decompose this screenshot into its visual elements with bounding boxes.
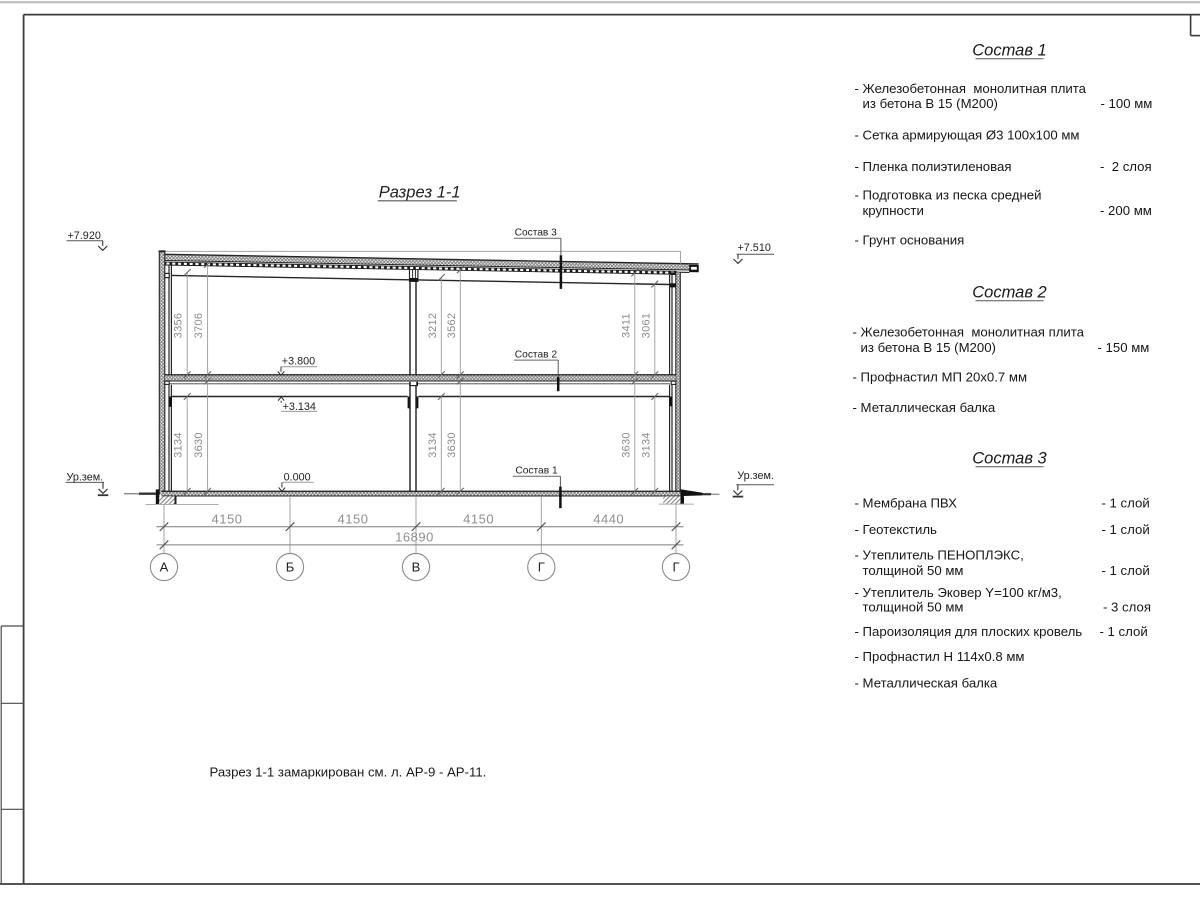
svg-text:3706: 3706 <box>193 313 205 339</box>
svg-text:- 1 слой: - 1 слой <box>1102 522 1150 537</box>
svg-text:- Железобетонная монолитная п: - Железобетонная монолитная плита <box>853 325 1085 340</box>
svg-text:Ур.зем.: Ур.зем. <box>67 472 104 484</box>
svg-text:4150: 4150 <box>463 511 494 526</box>
svg-text:- 1 слой: - 1 слой <box>1102 496 1150 511</box>
svg-text:- Пленка полиэтиленовая: - Пленка полиэтиленовая <box>855 159 1012 174</box>
svg-text:- 1 слой: - 1 слой <box>1100 624 1148 639</box>
svg-text:3134: 3134 <box>427 432 439 458</box>
svg-text:Разрез 1-1 замаркирован см. л.: Разрез 1-1 замаркирован см. л. АР-9 - АР… <box>210 765 487 780</box>
svg-text:Состав 1: Состав 1 <box>515 465 558 476</box>
svg-text:+7.510: +7.510 <box>738 242 771 254</box>
svg-text:Б: Б <box>286 560 295 575</box>
svg-text:- 200 мм: - 200 мм <box>1100 203 1152 218</box>
svg-text:- 100 мм: - 100 мм <box>1101 96 1153 111</box>
svg-text:3411: 3411 <box>620 313 632 338</box>
svg-text:3356: 3356 <box>173 313 185 339</box>
svg-text:- Металлическая балка: - Металлическая балка <box>853 400 996 415</box>
svg-text:+3.800: +3.800 <box>282 355 315 367</box>
svg-text:16890: 16890 <box>395 529 434 544</box>
svg-text:4150: 4150 <box>212 511 243 526</box>
svg-text:Г: Г <box>538 560 545 575</box>
svg-text:- Железобетонная монолитная п: - Железобетонная монолитная плита <box>855 81 1087 96</box>
svg-text:3061: 3061 <box>640 313 652 339</box>
svg-text:В: В <box>412 560 421 575</box>
svg-text:толщиной 50 мм: толщиной 50 мм <box>863 600 964 615</box>
svg-text:4440: 4440 <box>593 511 624 526</box>
svg-text:4150: 4150 <box>338 511 369 526</box>
svg-text:Разрез 1-1: Разрез 1-1 <box>379 184 461 202</box>
svg-text:- Утеплитель Эковер Y=100 кг/м: - Утеплитель Эковер Y=100 кг/м3, <box>855 585 1062 600</box>
svg-text:- Профнастил Н 114х0.8 мм: - Профнастил Н 114х0.8 мм <box>855 649 1025 664</box>
svg-text:- Мембрана ПВХ: - Мембрана ПВХ <box>855 496 958 511</box>
svg-text:Состав 2: Состав 2 <box>972 284 1046 302</box>
svg-text:- 150 мм: - 150 мм <box>1098 340 1150 355</box>
svg-text:из бетона В 15 (М200): из бетона В 15 (М200) <box>861 340 996 355</box>
svg-text:Г: Г <box>672 560 679 575</box>
svg-text:3562: 3562 <box>446 313 458 339</box>
svg-text:Состав 1: Состав 1 <box>972 42 1046 60</box>
svg-text:- Сетка армирующая Ø3 100х100: - Сетка армирующая Ø3 100х100 мм <box>855 128 1080 143</box>
svg-text:- Утеплитель ПЕНОПЛЭКС,: - Утеплитель ПЕНОПЛЭКС, <box>855 548 1024 563</box>
svg-text:- Металлическая балка: - Металлическая балка <box>855 676 998 691</box>
svg-text:3134: 3134 <box>173 432 185 458</box>
svg-text:А: А <box>160 560 169 575</box>
svg-text:- Геотекстиль: - Геотекстиль <box>855 522 938 537</box>
svg-text:- Подготовка из песка средней: - Подготовка из песка средней <box>855 188 1042 203</box>
svg-text:3630: 3630 <box>446 432 458 458</box>
svg-text:- 1 слой: - 1 слой <box>1102 563 1150 578</box>
svg-text:Состав 3: Состав 3 <box>972 450 1047 468</box>
svg-text:3630: 3630 <box>193 432 205 458</box>
svg-text:0.000: 0.000 <box>284 472 311 484</box>
svg-text:3630: 3630 <box>620 432 632 458</box>
svg-text:3212: 3212 <box>427 313 439 339</box>
svg-text:- 3 слоя: - 3 слоя <box>1103 600 1151 615</box>
svg-text:Ур.зем.: Ур.зем. <box>737 470 774 482</box>
svg-text:- Профнастил МП 20х0.7 мм: - Профнастил МП 20х0.7 мм <box>853 370 1028 385</box>
svg-text:толщиной 50 мм: толщиной 50 мм <box>863 563 964 578</box>
svg-text:+7.920: +7.920 <box>68 230 101 242</box>
svg-text:- Грунт основания: - Грунт основания <box>855 233 965 248</box>
svg-text:- 2 слоя: - 2 слоя <box>1100 159 1152 174</box>
svg-text:Состав 2: Состав 2 <box>515 349 558 360</box>
svg-text:3134: 3134 <box>640 432 652 458</box>
svg-text:- Пароизоляция для плоских кро: - Пароизоляция для плоских кровель <box>855 624 1083 639</box>
svg-text:из бетона В 15 (М200): из бетона В 15 (М200) <box>863 96 998 111</box>
svg-text:Состав 3: Состав 3 <box>515 228 558 239</box>
svg-text:крупности: крупности <box>863 203 924 218</box>
